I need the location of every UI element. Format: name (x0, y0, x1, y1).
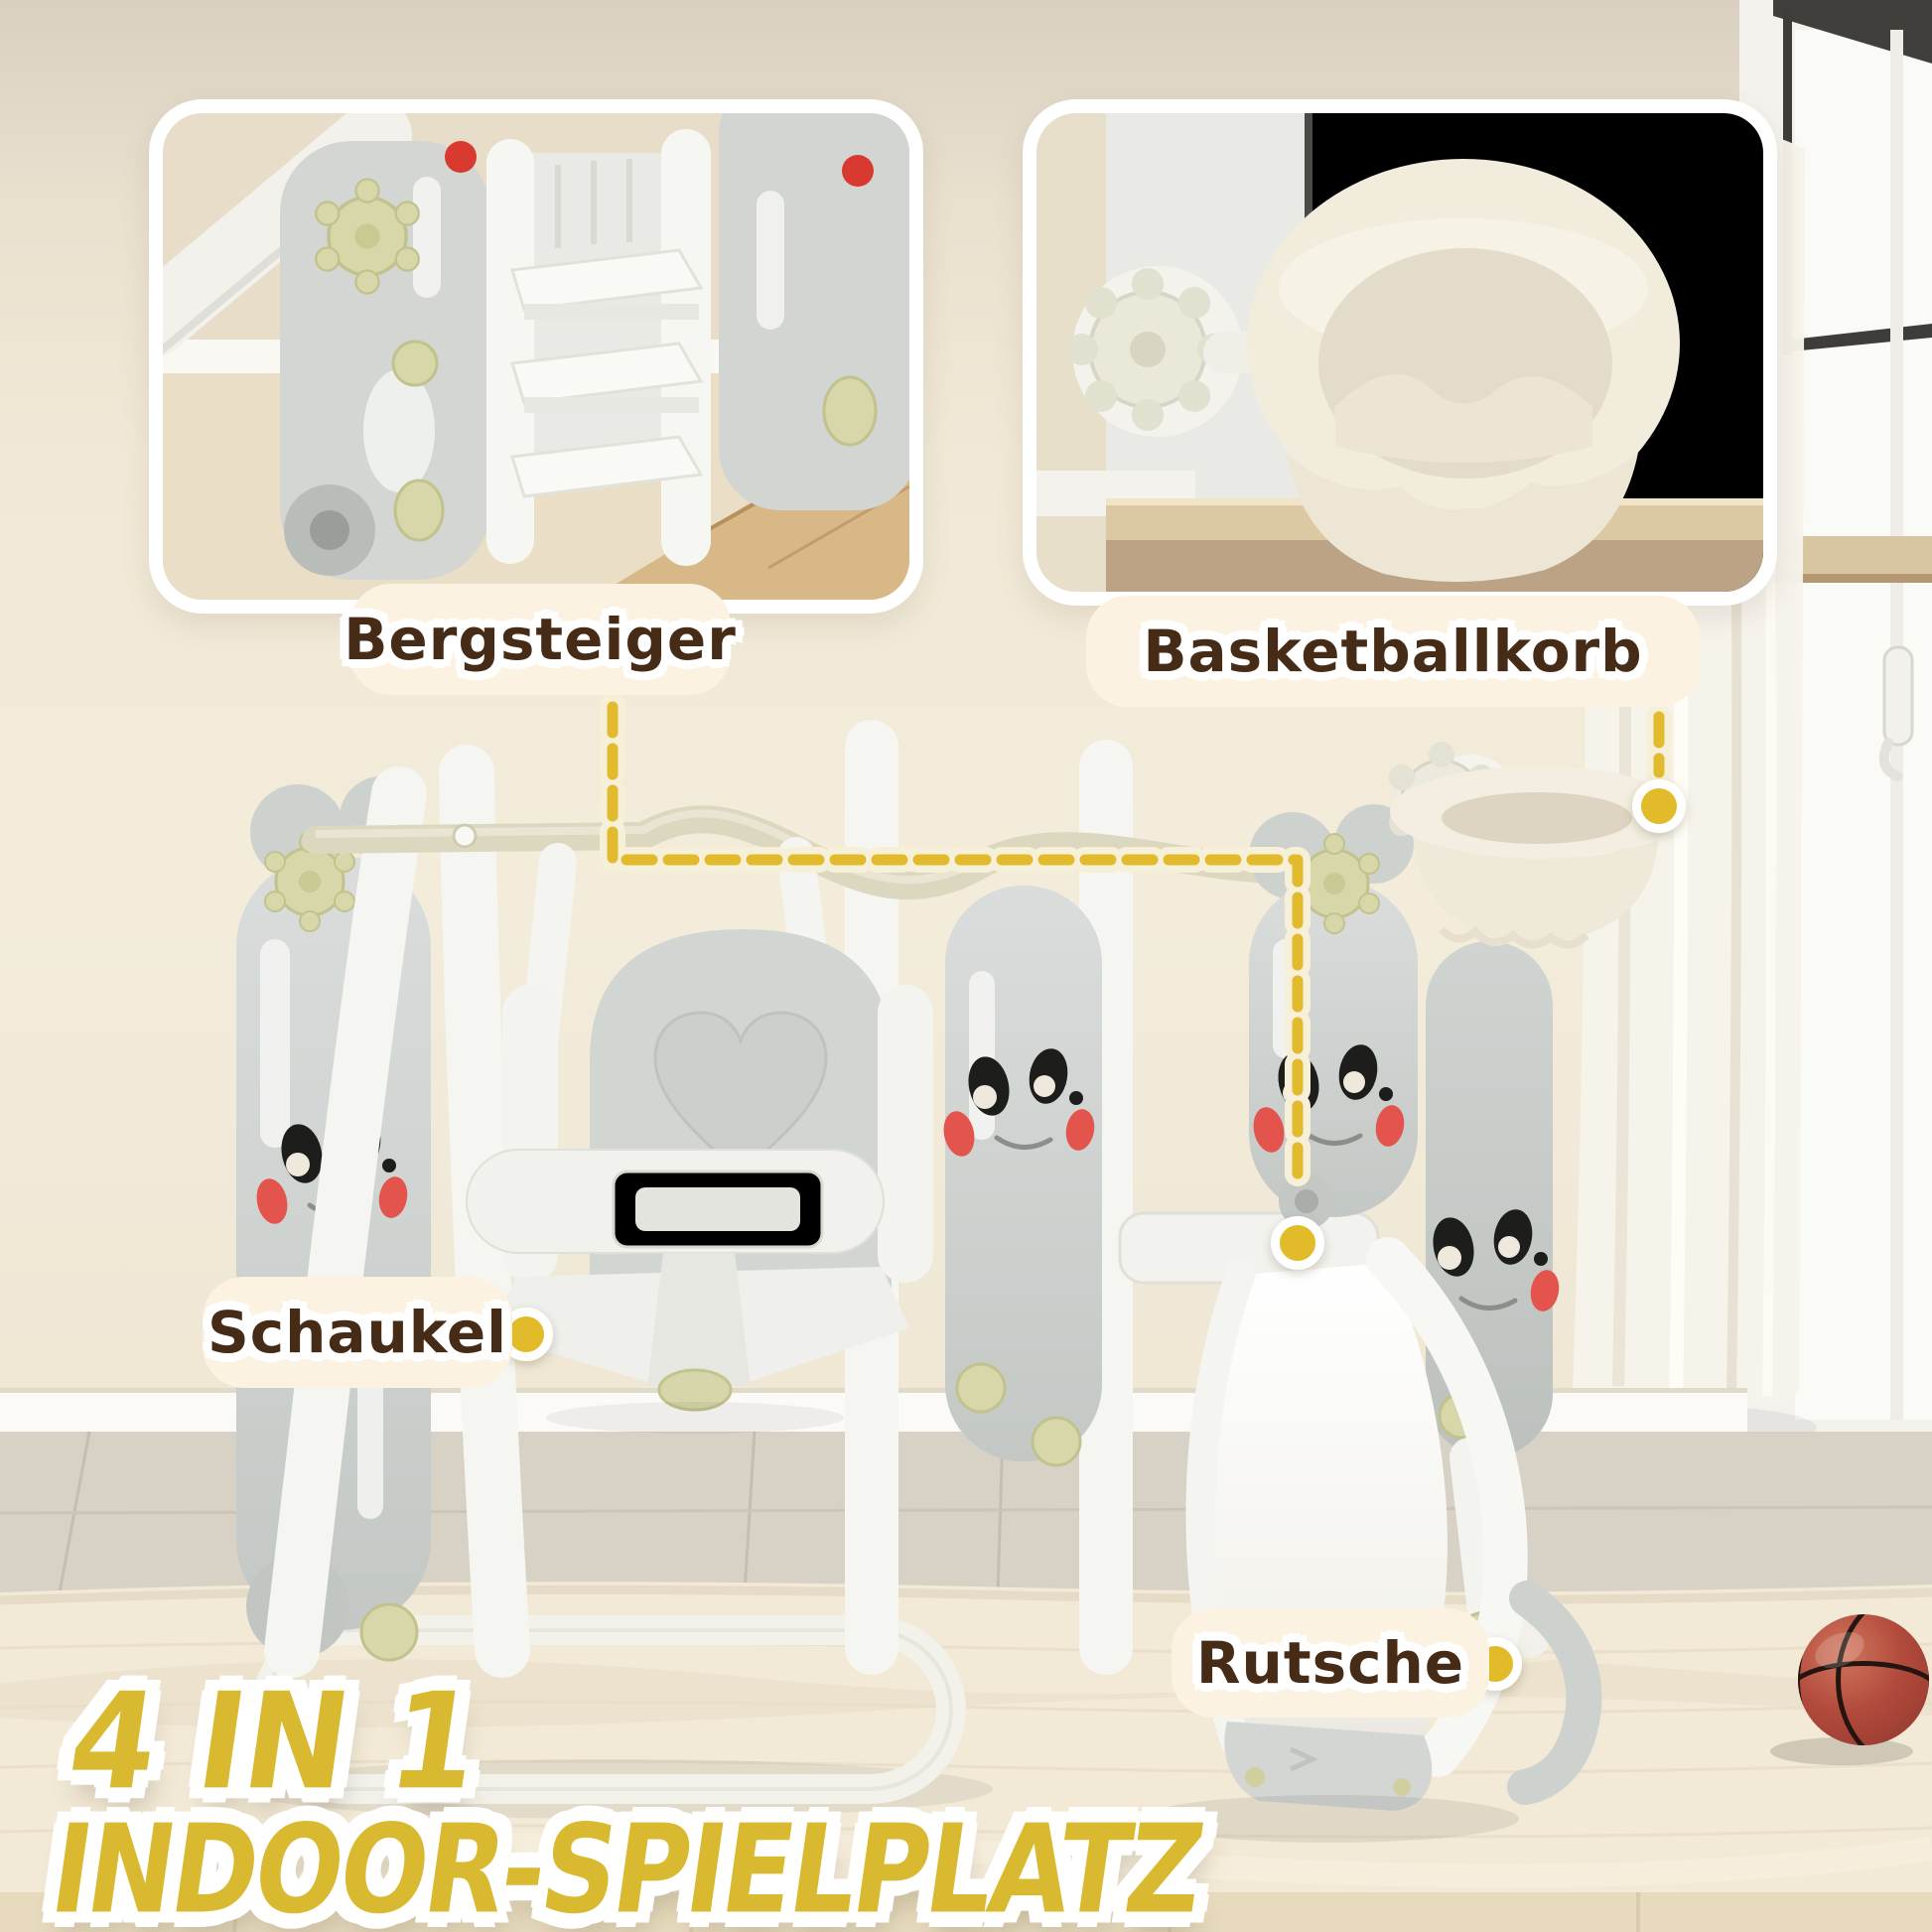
callout-basketballkorb-label: Basketballkorb (1143, 618, 1642, 685)
inset-right-panel (719, 113, 909, 510)
callout-schaukel-label: Schaukel (207, 1299, 507, 1366)
inset-climber-panel (280, 141, 490, 580)
callout-basketballkorb: Basketballkorb (1086, 596, 1700, 707)
callout-dot-icon (1271, 1216, 1324, 1270)
window-handle (1884, 647, 1912, 745)
product-infographic: Bergsteiger Basketballkorb Schaukel Ruts… (0, 0, 1932, 1932)
inset-photo-basketballkorb (1036, 113, 1763, 592)
callout-bergsteiger: Bergsteiger (349, 584, 731, 695)
callout-rutsche-label: Rutsche (1196, 1629, 1464, 1697)
bunny-panel-slide (1249, 804, 1418, 1229)
callout-rutsche: Rutsche (1172, 1608, 1489, 1718)
bunny-panel-center (940, 886, 1102, 1465)
title-line-2: INDOOR-SPIELPLATZ (45, 1809, 1208, 1931)
inset-photo-bergsteiger (163, 113, 909, 600)
title-line-1: 4 IN 1 (62, 1676, 486, 1809)
callout-schaukel: Schaukel (203, 1277, 512, 1388)
inset-card-basketballkorb (1023, 99, 1777, 606)
callout-bergsteiger-label: Bergsteiger (344, 606, 737, 673)
callout-dot-icon (1632, 779, 1686, 833)
inset-card-bergsteiger (149, 99, 923, 614)
